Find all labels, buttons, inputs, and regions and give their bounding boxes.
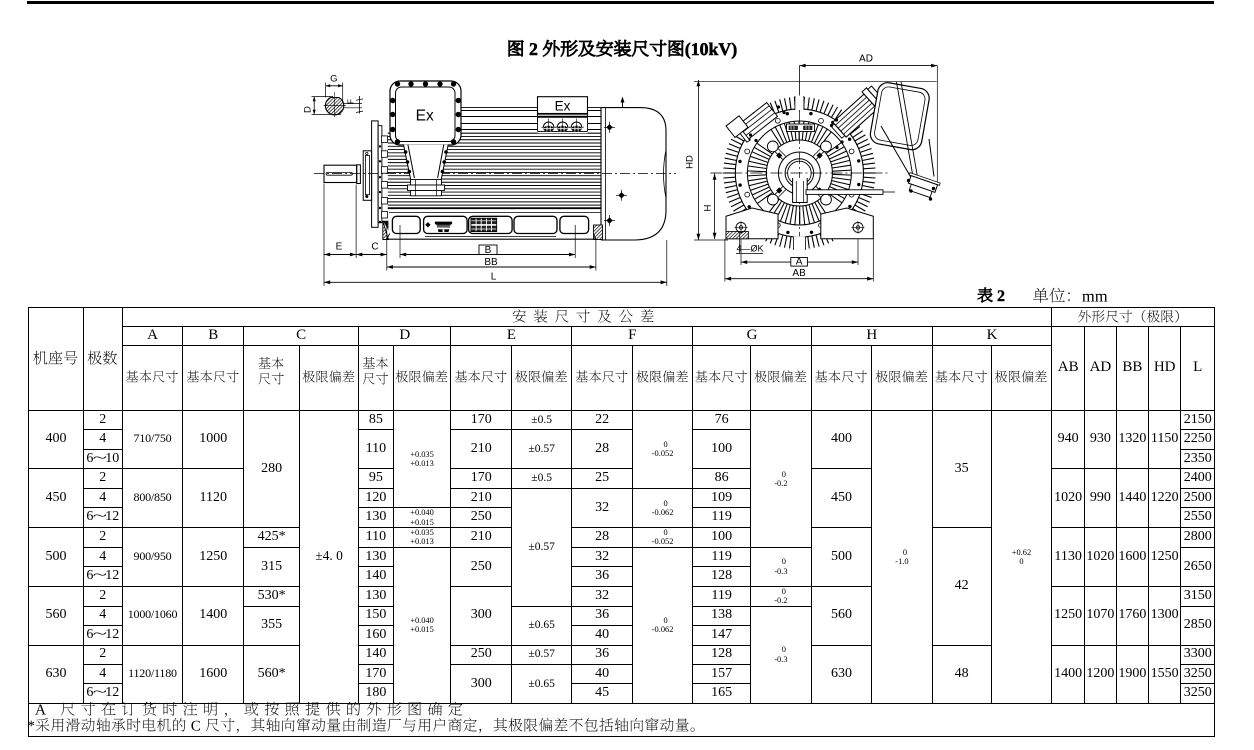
svg-text:4—ØK: 4—ØK <box>736 244 763 254</box>
svg-text:AB: AB <box>792 268 806 279</box>
svg-text:F: F <box>347 99 356 104</box>
svg-text:D: D <box>302 106 313 113</box>
svg-text:BB: BB <box>484 257 498 268</box>
svg-text:H: H <box>703 204 714 211</box>
svg-text:C: C <box>371 242 378 253</box>
svg-text:E: E <box>336 242 343 253</box>
svg-text:HD: HD <box>685 155 696 169</box>
svg-text:Ex: Ex <box>555 98 571 113</box>
svg-text:G: G <box>330 74 337 85</box>
svg-text:Ex: Ex <box>416 108 434 125</box>
svg-text:AD: AD <box>859 54 873 65</box>
svg-text:A: A <box>796 257 803 268</box>
svg-text:B: B <box>485 245 492 256</box>
svg-text:L: L <box>491 272 497 283</box>
